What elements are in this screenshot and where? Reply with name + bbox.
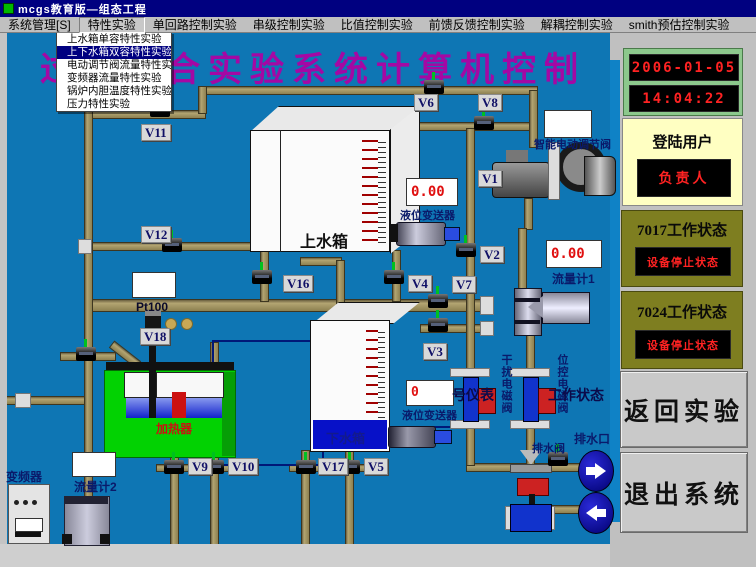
valve-v17[interactable] [296,460,316,474]
pump-reverse-icon [586,505,606,521]
interference-solenoid-label: 干扰电磁阀 [498,354,514,450]
flow2-label: 流量计2 [74,478,117,495]
dropdown-item-inverter-flow[interactable]: 变频器流量特性实验 [57,72,171,85]
status-7024-title: 7024工作状态 [622,301,742,322]
valve-label-v3: V3 [423,343,447,360]
pt100-display [132,272,176,298]
heater-top-bar [106,362,234,370]
heater-element [172,392,186,418]
upper-tank-label: 上水箱 [300,228,348,252]
upper-tank-scale [362,140,378,246]
date-display: 2006-01-05 [629,54,739,81]
valve-v18[interactable] [76,347,96,361]
time-display: 14:04:22 [629,85,739,112]
login-user-display: 负责人 [637,159,731,197]
window-titlebar: mcgs教育版—组态工程 [0,0,756,17]
upper-level-transmitter-label: 液位变送器 [400,207,455,223]
menu-feedforward[interactable]: 前馈反馈控制实验 [421,18,533,32]
solenoid-flange [510,368,550,377]
valve-v4[interactable] [384,270,404,284]
menu-single-loop[interactable]: 单回路控制实验 [145,18,245,32]
valve-label-v1: V1 [478,170,502,187]
valve-label-v17: V17 [318,458,348,475]
heater-knob [181,318,193,330]
lower-tank-label: 下水箱 [326,428,365,447]
smart-valve-label: 智能电动调节阀 [534,136,611,152]
lower-tank-scale [366,330,378,418]
lower-level-transmitter-label: 液位变送器 [402,407,457,423]
valve-v3[interactable] [428,318,448,332]
inverter-indicator [32,500,37,505]
lower-level-transmitter [388,426,436,448]
inverter-indicator [23,500,28,505]
valve-label-v5: V5 [364,458,388,475]
valve-label-v4: V4 [408,275,432,292]
pipe-tee [78,239,92,254]
menu-ratio[interactable]: 比值控制实验 [333,18,421,32]
inverter-vent [15,532,41,537]
dropdown-item-pressure[interactable]: 压力特性实验 [57,98,171,111]
valve-v16[interactable] [252,270,272,284]
window-title: mcgs教育版—组态工程 [18,1,147,17]
pt100-label: Pt100 [136,300,168,314]
inverter-label: 变频器 [6,468,42,485]
drain-valve-label: 排水阀 [532,440,565,456]
flow-meter-band [514,320,540,324]
upper-level-display: 0.00 [406,178,458,206]
pipe-flange [480,321,494,336]
valve-label-v7: V7 [452,276,476,293]
smart-valve-display [544,110,592,138]
pipe [518,228,527,290]
flow-meter-2-foot [100,534,110,544]
pipe [0,396,88,405]
menu-cascade[interactable]: 串级控制实验 [245,18,333,32]
valve-v2[interactable] [456,243,476,257]
floor-strip [0,544,612,567]
dropdown-item-boiler-temp[interactable]: 锅炉内胆温度特性实验 [57,85,171,98]
pipe-tee [15,393,31,408]
solenoid-flange [450,368,490,377]
panel-blue-strip [610,60,620,522]
pump-reverse[interactable] [578,492,614,534]
status-7024-panel: 7024工作状态 设备停止状态 [621,291,743,369]
pump-body [510,504,552,532]
pump-forward-icon [586,463,606,479]
status-overlay-right: 工作状态 [548,385,604,405]
pump-forward[interactable] [578,450,614,492]
valve-label-v10: V10 [228,458,258,475]
upper-tank-scale-minor [378,142,386,246]
transmitter-collar [390,224,398,242]
flow-meter-band [514,298,540,302]
menubar: 系统管理[S] 特性实验 单回路控制实验 串级控制实验 比值控制实验 前馈反馈控… [0,17,756,33]
mcgs-window: mcgs教育版—组态工程 系统管理[S] 特性实验 单回路控制实验 串级控制实验… [0,0,756,567]
status-7024-value: 设备停止状态 [635,330,731,359]
valve-motor [584,156,616,196]
valve-label-v2: V2 [480,246,504,263]
status-overlay-left: 号仪表 [452,385,494,405]
flow1-label: 流量计1 [552,270,595,287]
menu-system-manage[interactable]: 系统管理[S] [0,18,79,32]
login-label: 登陆用户 [623,131,742,152]
mcgs-app-icon [3,3,14,14]
valve-v8[interactable] [474,116,494,130]
valve-label-v18: V18 [140,328,170,345]
dropdown-item-upper-tank-single[interactable]: 上水箱单容特性实验 [57,33,171,46]
valve-label-v9: V9 [188,458,212,475]
characteristic-exp-dropdown: 上水箱单容特性实验 上下水箱双容特性实验 电动调节阀流量特性实验 变频器流量特性… [56,32,172,112]
flow1-display: 0.00 [546,240,602,268]
menu-smith[interactable]: smith预估控制实验 [621,18,738,32]
exit-system-button[interactable]: 退出系统 [620,452,748,533]
pump-shaft [529,494,535,504]
upper-level-transmitter [396,222,446,246]
datetime-frame: 2006-01-05 14:04:22 [623,48,743,116]
lower-tank-scale-minor [378,332,385,418]
valve-v6[interactable] [424,80,444,94]
valve-v7[interactable] [428,294,448,308]
inverter-indicator [14,500,19,505]
valve-label-v8: V8 [478,94,502,111]
upper-tank-divider [280,130,281,252]
inverter-slot [15,518,43,532]
flow-meter-1-body [542,292,590,324]
valve-label-v6: V6 [414,94,438,111]
menu-decoupling[interactable]: 解耦控制实验 [533,18,621,32]
pipe [524,198,533,230]
heater-grid-line [156,372,157,398]
valve-v9[interactable] [164,460,184,474]
valve-label-v12: V12 [141,226,171,243]
pipe-flange [480,296,494,315]
lower-level-display: 0 [406,380,454,406]
status-7017-title: 7017工作状态 [622,219,742,240]
transmitter-tip [434,430,452,444]
login-panel: 登陆用户 负责人 [622,118,743,206]
flow2-display [72,452,116,477]
heater-label: 加热器 [156,420,192,437]
flow-meter-2-foot [62,534,72,544]
dropdown-item-double-tank[interactable]: 上下水箱双容特性实验 [57,46,171,59]
menu-characteristic-exp[interactable]: 特性实验 [79,17,145,33]
flow-meter-2-cap [64,496,108,504]
drain-outlet-label: 排水口 [574,430,610,447]
return-experiment-button[interactable]: 返回实验 [620,371,748,448]
valve-label-v11: V11 [141,124,171,141]
drain-base [510,464,552,473]
valve-label-v16: V16 [283,275,313,292]
status-7017-panel: 7017工作状态 设备停止状态 [621,210,743,287]
transmitter-tip [444,227,460,241]
position-solenoid-valve[interactable] [523,377,539,422]
status-7017-value: 设备停止状态 [635,247,731,276]
dropdown-item-motor-valve-flow[interactable]: 电动调节阀流量特性实验 [57,59,171,72]
